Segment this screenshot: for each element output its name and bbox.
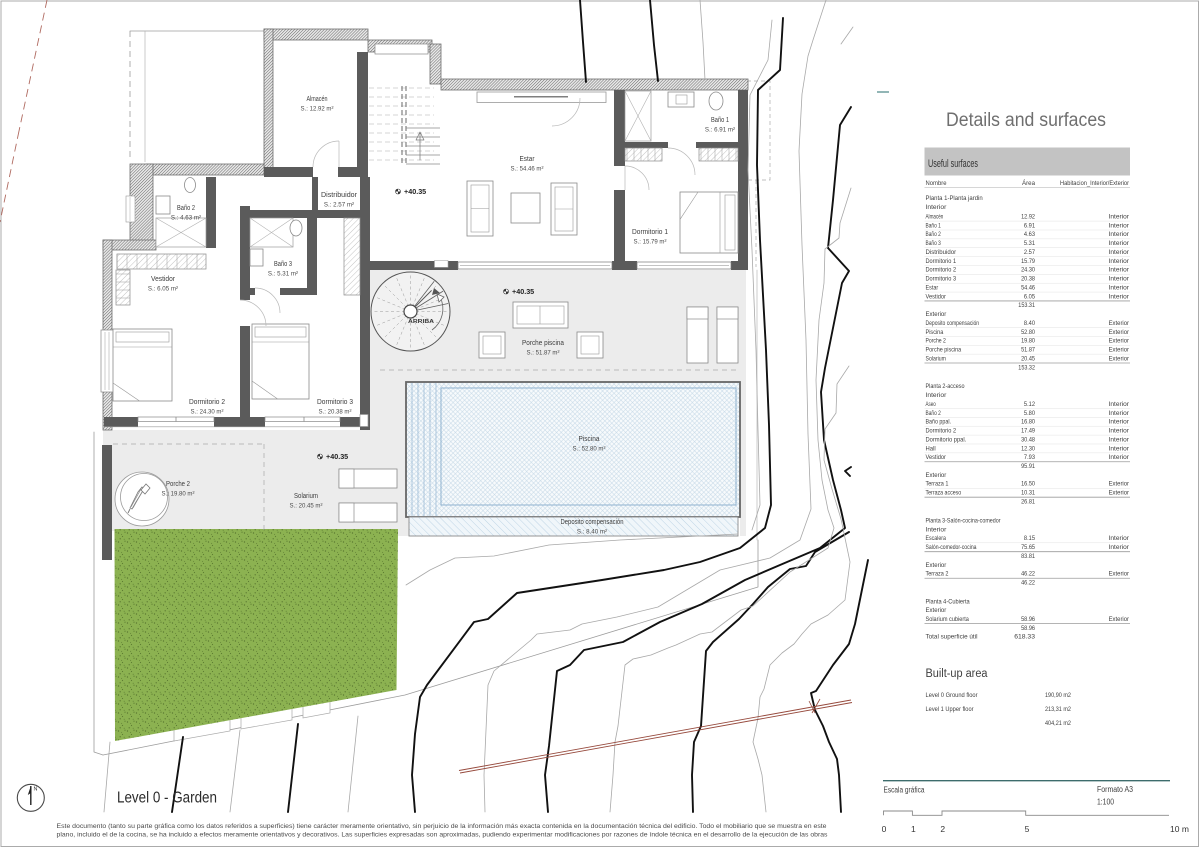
svg-text:52.80: 52.80 bbox=[1021, 329, 1035, 336]
svg-text:Exterior: Exterior bbox=[1109, 481, 1130, 488]
svg-text:Interior: Interior bbox=[1109, 544, 1130, 551]
svg-text:Solarium cubierta: Solarium cubierta bbox=[926, 616, 970, 623]
svg-text:Nombre: Nombre bbox=[926, 180, 947, 187]
svg-text:Details and surfaces: Details and surfaces bbox=[946, 110, 1106, 131]
svg-text:plano, incluido el de la cocin: plano, incluido el de la cocina, se ha i… bbox=[57, 832, 829, 839]
svg-text:Exterior: Exterior bbox=[1109, 616, 1130, 623]
svg-text:Porche piscina: Porche piscina bbox=[522, 340, 564, 347]
svg-text:Almacén: Almacén bbox=[307, 96, 328, 103]
svg-text:Interior: Interior bbox=[1109, 258, 1130, 265]
svg-text:Distribuidor: Distribuidor bbox=[926, 249, 957, 256]
svg-text:6.91: 6.91 bbox=[1024, 222, 1035, 229]
svg-text:S.: 2.57 m²: S.: 2.57 m² bbox=[324, 202, 354, 209]
svg-text:Estar: Estar bbox=[926, 284, 939, 291]
svg-text:5.12: 5.12 bbox=[1024, 401, 1035, 408]
svg-text:8.40: 8.40 bbox=[1024, 320, 1035, 327]
svg-text:Vestidor: Vestidor bbox=[926, 293, 947, 300]
svg-text:Interior: Interior bbox=[1109, 401, 1130, 408]
svg-text:Dormitorio 1: Dormitorio 1 bbox=[632, 229, 668, 236]
svg-text:83.81: 83.81 bbox=[1021, 553, 1035, 560]
svg-text:S.: 52.80 m²: S.: 52.80 m² bbox=[573, 446, 606, 453]
svg-text:0: 0 bbox=[882, 824, 887, 834]
svg-text:ARRIBA: ARRIBA bbox=[408, 319, 435, 325]
svg-text:Planta 3-Salón-cocina-comedor: Planta 3-Salón-cocina-comedor bbox=[926, 518, 1002, 525]
svg-text:Level 0 Ground floor: Level 0 Ground floor bbox=[926, 692, 979, 699]
svg-text:1:100: 1:100 bbox=[1097, 798, 1114, 807]
svg-text:2.57: 2.57 bbox=[1024, 249, 1035, 256]
svg-text:Exterior: Exterior bbox=[1109, 571, 1130, 578]
svg-text:Interior: Interior bbox=[926, 526, 948, 533]
svg-text:+40.35: +40.35 bbox=[404, 187, 426, 196]
svg-text:153.32: 153.32 bbox=[1018, 364, 1035, 371]
svg-text:Level 0 - Garden: Level 0 - Garden bbox=[117, 790, 217, 807]
svg-text:Total superficie útil: Total superficie útil bbox=[926, 634, 978, 641]
svg-text:Planta 1-Planta jardin: Planta 1-Planta jardin bbox=[926, 195, 983, 202]
svg-text:1: 1 bbox=[911, 824, 916, 834]
svg-text:20.45: 20.45 bbox=[1021, 355, 1035, 362]
svg-text:S.: 12.92 m²: S.: 12.92 m² bbox=[301, 106, 334, 113]
svg-text:15.79: 15.79 bbox=[1021, 258, 1035, 265]
svg-text:S.: 24.30 m²: S.: 24.30 m² bbox=[191, 409, 224, 416]
svg-text:S.: 4.63 m²: S.: 4.63 m² bbox=[171, 215, 201, 222]
svg-text:Interior: Interior bbox=[926, 204, 948, 211]
svg-text:Solarium: Solarium bbox=[926, 355, 947, 362]
svg-text:Exterior: Exterior bbox=[926, 607, 947, 614]
svg-text:Terraza acceso: Terraza acceso bbox=[926, 490, 962, 497]
svg-text:Exterior: Exterior bbox=[926, 562, 947, 569]
svg-text:6.05: 6.05 bbox=[1024, 293, 1035, 300]
svg-text:75.65: 75.65 bbox=[1021, 544, 1035, 551]
svg-text:51.87: 51.87 bbox=[1021, 347, 1035, 354]
svg-text:Interior: Interior bbox=[1109, 535, 1130, 542]
svg-text:Dormitorio 2: Dormitorio 2 bbox=[926, 428, 957, 435]
svg-text:Salón-comedor-cocina: Salón-comedor-cocina bbox=[926, 544, 977, 551]
svg-text:Porche 2: Porche 2 bbox=[166, 481, 190, 488]
svg-text:Solarium: Solarium bbox=[294, 493, 318, 500]
svg-text:Interior: Interior bbox=[1109, 222, 1130, 229]
svg-text:30.48: 30.48 bbox=[1021, 436, 1035, 443]
svg-text:19.80: 19.80 bbox=[1021, 338, 1035, 345]
svg-text:Baño 2: Baño 2 bbox=[926, 410, 941, 417]
svg-text:Useful surfaces: Useful surfaces bbox=[928, 158, 978, 170]
svg-text:Exterior: Exterior bbox=[1109, 355, 1130, 362]
svg-text:10 m: 10 m bbox=[1170, 824, 1189, 834]
svg-text:S.: 6.05 m²: S.: 6.05 m² bbox=[148, 286, 178, 293]
svg-text:Interior: Interior bbox=[1109, 214, 1130, 221]
svg-text:Hall: Hall bbox=[926, 445, 937, 452]
svg-text:Interior: Interior bbox=[1109, 445, 1130, 452]
svg-text:153.31: 153.31 bbox=[1018, 302, 1035, 309]
svg-text:Porche 2: Porche 2 bbox=[926, 338, 947, 345]
svg-text:Planta 2-acceso: Planta 2-acceso bbox=[926, 383, 965, 390]
svg-text:Deposito compensación: Deposito compensación bbox=[561, 517, 624, 526]
svg-text:Exterior: Exterior bbox=[1109, 338, 1130, 345]
svg-text:Terraza 2: Terraza 2 bbox=[926, 571, 949, 578]
svg-text:Distribuidor: Distribuidor bbox=[321, 192, 358, 199]
svg-text:Exterior: Exterior bbox=[1109, 329, 1130, 336]
svg-text:16.80: 16.80 bbox=[1021, 419, 1035, 426]
svg-text:Almacén: Almacén bbox=[926, 214, 944, 221]
svg-text:Dormitorio 2: Dormitorio 2 bbox=[926, 267, 957, 274]
svg-text:16.50: 16.50 bbox=[1021, 481, 1035, 488]
svg-text:17.49: 17.49 bbox=[1021, 428, 1035, 435]
svg-text:8.15: 8.15 bbox=[1024, 535, 1035, 542]
svg-text:26.81: 26.81 bbox=[1021, 498, 1035, 505]
svg-text:95.91: 95.91 bbox=[1021, 463, 1035, 470]
svg-text:Piscina: Piscina bbox=[926, 329, 944, 336]
svg-text:190,90 m2: 190,90 m2 bbox=[1045, 692, 1071, 699]
svg-text:Interior: Interior bbox=[1109, 293, 1130, 300]
svg-text:Baño 1: Baño 1 bbox=[711, 117, 729, 124]
svg-text:2: 2 bbox=[940, 824, 945, 834]
svg-text:Baño 2: Baño 2 bbox=[926, 231, 941, 238]
svg-text:S.: 51.87 m²: S.: 51.87 m² bbox=[527, 350, 560, 357]
svg-text:Interior: Interior bbox=[926, 392, 948, 399]
svg-text:Exterior: Exterior bbox=[1109, 490, 1130, 497]
svg-text:Exterior: Exterior bbox=[926, 311, 947, 318]
svg-text:Interior: Interior bbox=[1109, 436, 1130, 443]
svg-text:S.: 5.31 m²: S.: 5.31 m² bbox=[268, 271, 298, 278]
svg-text:20.38: 20.38 bbox=[1021, 276, 1035, 283]
svg-text:S.: 15.79 m²: S.: 15.79 m² bbox=[634, 239, 667, 246]
svg-text:S.: 6.91 m²: S.: 6.91 m² bbox=[705, 127, 735, 134]
svg-text:618.33: 618.33 bbox=[1014, 634, 1035, 641]
svg-text:58.96: 58.96 bbox=[1021, 625, 1035, 632]
svg-text:58.96: 58.96 bbox=[1021, 616, 1035, 623]
svg-text:Interior: Interior bbox=[1109, 249, 1130, 256]
svg-text:12.92: 12.92 bbox=[1021, 214, 1035, 221]
svg-text:Baño 1: Baño 1 bbox=[926, 222, 941, 229]
svg-text:S.: 19.80 m²: S.: 19.80 m² bbox=[162, 491, 195, 498]
svg-text:Baño 3: Baño 3 bbox=[926, 240, 941, 247]
svg-text:54.46: 54.46 bbox=[1021, 284, 1035, 291]
svg-text:Terraza 1: Terraza 1 bbox=[926, 481, 949, 488]
svg-text:Estar: Estar bbox=[520, 156, 536, 163]
svg-text:Interior: Interior bbox=[1109, 428, 1130, 435]
svg-text:Built-up area: Built-up area bbox=[926, 668, 989, 680]
svg-text:Aseo: Aseo bbox=[926, 401, 936, 408]
svg-text:Formato A3: Formato A3 bbox=[1097, 785, 1133, 794]
svg-text:7.93: 7.93 bbox=[1024, 454, 1035, 461]
svg-text:Level 1 Upper floor: Level 1 Upper floor bbox=[926, 706, 975, 713]
svg-text:Dormitorio ppal.: Dormitorio ppal. bbox=[926, 436, 967, 443]
svg-text:S.: 20.45 m²: S.: 20.45 m² bbox=[290, 503, 323, 510]
svg-text:S.: 8.40 m²: S.: 8.40 m² bbox=[577, 529, 608, 536]
svg-text:Baño 2: Baño 2 bbox=[177, 205, 195, 212]
svg-text:213,31 m2: 213,31 m2 bbox=[1045, 706, 1071, 713]
svg-text:Planta 4-Cubierta: Planta 4-Cubierta bbox=[926, 598, 970, 605]
svg-text:Interior: Interior bbox=[1109, 267, 1130, 274]
svg-text:Dormitorio 2: Dormitorio 2 bbox=[189, 399, 225, 406]
svg-text:46.22: 46.22 bbox=[1021, 571, 1035, 578]
svg-text:Interior: Interior bbox=[1109, 231, 1130, 238]
svg-text:Escala gráfica: Escala gráfica bbox=[884, 786, 925, 795]
svg-text:Baño 3: Baño 3 bbox=[274, 261, 292, 268]
svg-text:Interior: Interior bbox=[1109, 419, 1130, 426]
svg-text:Interior: Interior bbox=[1109, 410, 1130, 417]
svg-text:5.31: 5.31 bbox=[1024, 240, 1035, 247]
svg-text:Piscina: Piscina bbox=[579, 436, 600, 443]
svg-text:Baño ppal.: Baño ppal. bbox=[926, 419, 952, 426]
svg-text:Interior: Interior bbox=[1109, 454, 1130, 461]
svg-text:4.63: 4.63 bbox=[1024, 231, 1035, 238]
svg-text:+40.35: +40.35 bbox=[326, 452, 348, 461]
svg-text:Exterior: Exterior bbox=[1109, 347, 1130, 354]
svg-text:S.: 54.46 m²: S.: 54.46 m² bbox=[511, 166, 544, 173]
svg-text:Vestidor: Vestidor bbox=[926, 454, 947, 461]
svg-text:24.30: 24.30 bbox=[1021, 267, 1035, 274]
svg-text:Exterior: Exterior bbox=[926, 472, 947, 479]
svg-text:Dormitorio 3: Dormitorio 3 bbox=[926, 276, 957, 283]
svg-text:+40.35: +40.35 bbox=[512, 287, 534, 296]
svg-text:46.22: 46.22 bbox=[1021, 580, 1035, 587]
svg-text:Este documento (tanto su parte: Este documento (tanto su parte gráfica c… bbox=[57, 823, 827, 830]
svg-text:Dormitorio 3: Dormitorio 3 bbox=[317, 399, 353, 406]
svg-text:5: 5 bbox=[1025, 824, 1030, 834]
svg-text:Interior: Interior bbox=[1109, 284, 1130, 291]
svg-text:10.31: 10.31 bbox=[1021, 490, 1035, 497]
svg-text:12.30: 12.30 bbox=[1021, 445, 1035, 452]
svg-text:Interior: Interior bbox=[1109, 276, 1130, 283]
svg-text:Dormitorio 1: Dormitorio 1 bbox=[926, 258, 957, 265]
svg-text:Porche piscina: Porche piscina bbox=[926, 347, 962, 354]
svg-text:5.80: 5.80 bbox=[1024, 410, 1035, 417]
svg-text:N: N bbox=[34, 787, 38, 793]
svg-text:Deposito compensación: Deposito compensación bbox=[926, 320, 980, 327]
svg-text:Habitacion_Interior/Exterior: Habitacion_Interior/Exterior bbox=[1060, 180, 1130, 187]
svg-text:S.: 20.38 m²: S.: 20.38 m² bbox=[319, 409, 352, 416]
svg-text:Interior: Interior bbox=[1109, 240, 1130, 247]
svg-text:Área: Área bbox=[1022, 178, 1035, 187]
svg-text:404,21 m2: 404,21 m2 bbox=[1045, 720, 1071, 727]
svg-text:Vestidor: Vestidor bbox=[151, 276, 176, 283]
svg-text:Escalera: Escalera bbox=[926, 535, 947, 542]
svg-text:Exterior: Exterior bbox=[1109, 320, 1130, 327]
